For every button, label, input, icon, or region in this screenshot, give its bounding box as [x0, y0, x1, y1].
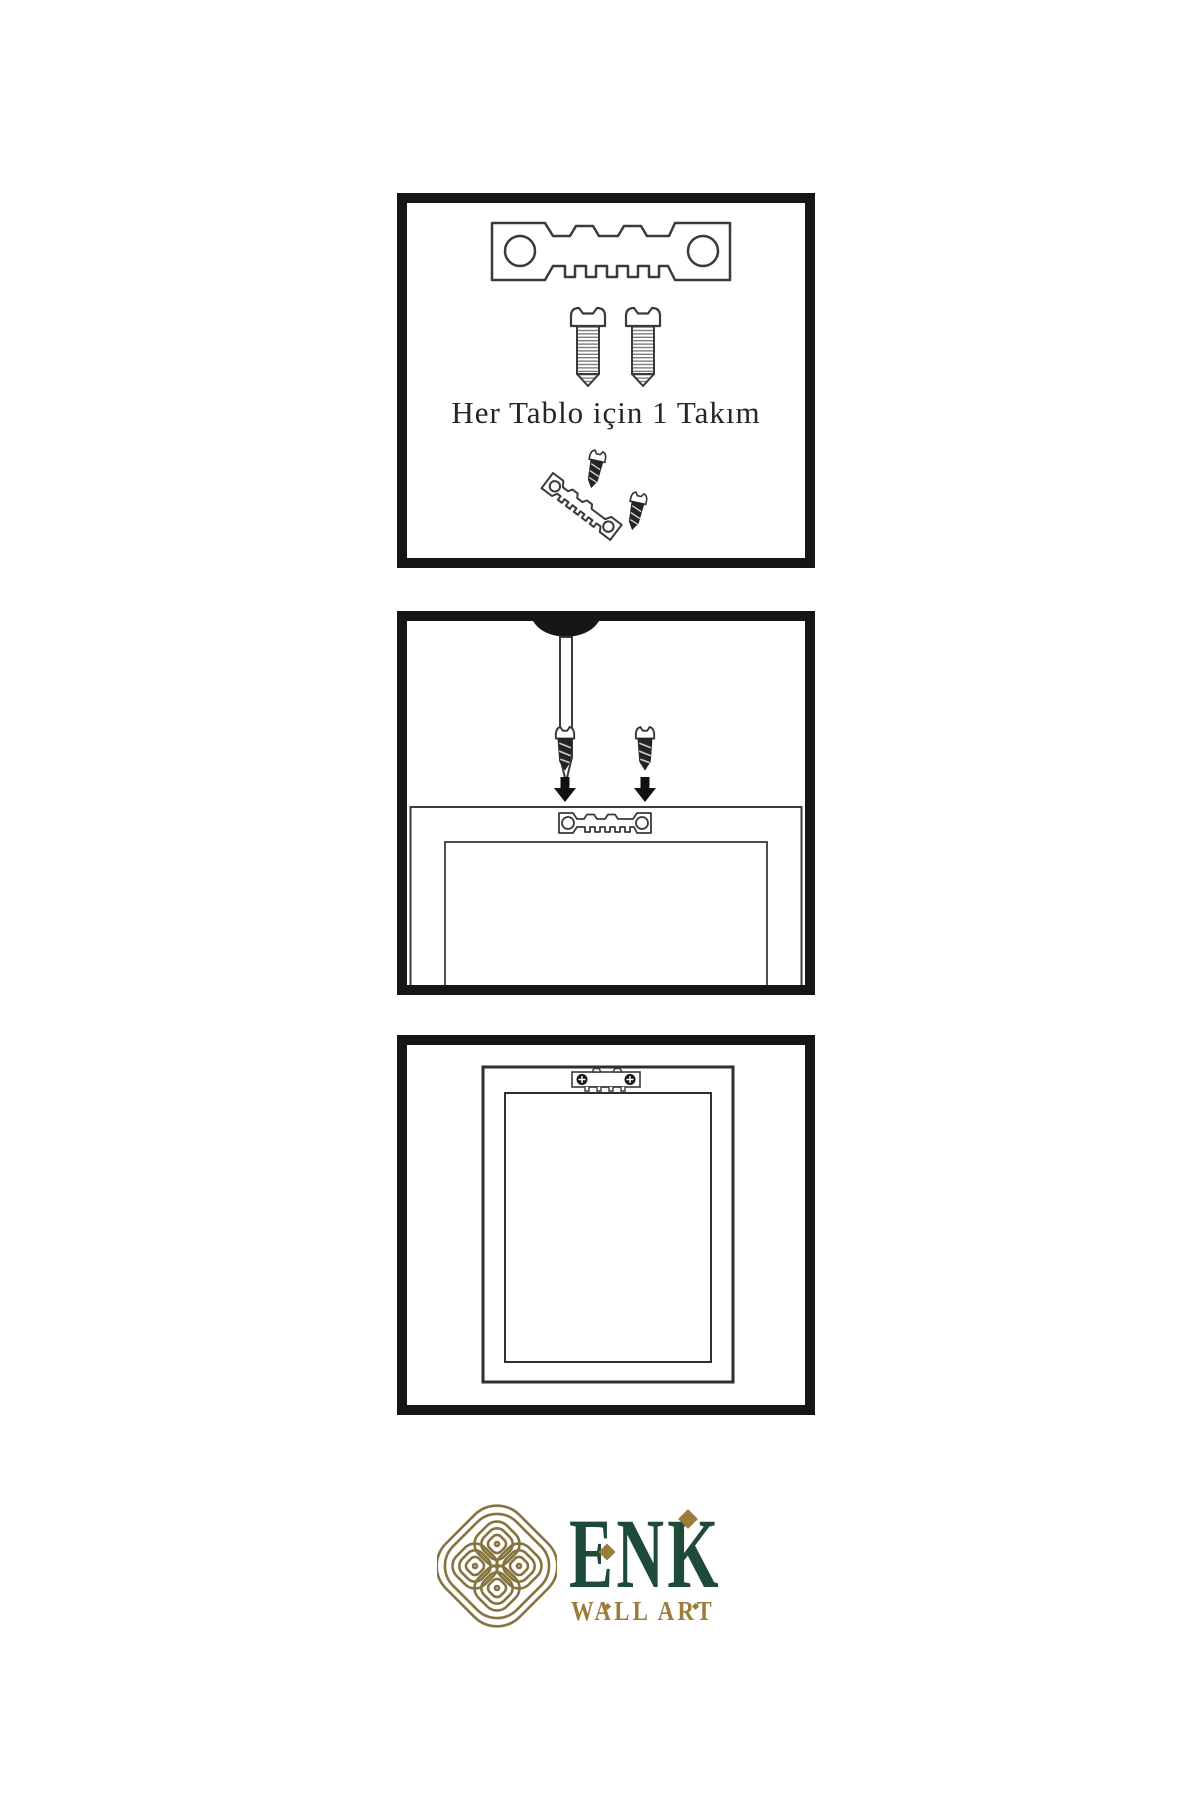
sawtooth-hanger-icon	[492, 223, 730, 280]
mounting-illustration	[407, 621, 805, 985]
step-caption: Her Tablo için 1 Takım	[407, 395, 805, 431]
frame-back-illustration	[411, 807, 802, 985]
instruction-step-2-panel	[397, 611, 815, 995]
down-arrow-icon	[634, 777, 656, 802]
mounted-sawtooth-hanger-icon	[572, 1069, 640, 1092]
brand-wordmark-block: ENK WALL ART	[565, 1496, 747, 1636]
knot-icon	[437, 1504, 557, 1629]
hardware-set-illustration	[407, 203, 805, 558]
brand-subtitle: WALL ART	[571, 1596, 715, 1627]
instruction-sheet: Her Tablo için 1 Takım	[0, 0, 1200, 1800]
brand-logo: ENK WALL ART	[437, 1496, 747, 1646]
dark-screw-icon	[636, 727, 654, 770]
brand-wordmark: ENK	[569, 1496, 722, 1611]
instruction-step-3-panel	[397, 1035, 815, 1415]
instruction-step-1-panel: Her Tablo için 1 Takım	[397, 193, 815, 568]
hanging-frame-icon	[483, 1067, 733, 1382]
screw-hanger-assembly-icon	[542, 449, 648, 540]
hanging-frame-illustration	[407, 1045, 805, 1405]
down-arrow-icon	[554, 777, 576, 802]
screw-icon	[571, 308, 605, 386]
screw-icon	[626, 308, 660, 386]
